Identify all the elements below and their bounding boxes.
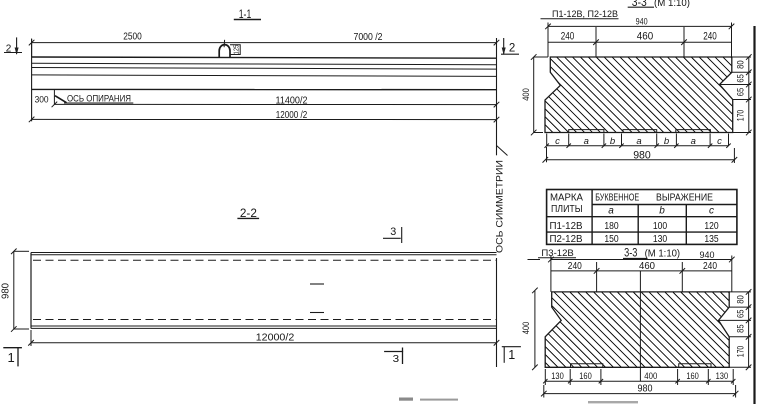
svg-text:980: 980 bbox=[633, 149, 651, 161]
svg-text:170: 170 bbox=[736, 346, 746, 358]
svg-text:240: 240 bbox=[561, 30, 575, 42]
svg-text:b: b bbox=[610, 136, 615, 147]
svg-text:a: a bbox=[608, 206, 614, 217]
svg-text:65: 65 bbox=[736, 309, 746, 318]
svg-text:130: 130 bbox=[551, 371, 564, 382]
svg-text:П1-12В, П2-12В: П1-12В, П2-12В bbox=[552, 9, 618, 20]
svg-text:125: 125 bbox=[231, 45, 240, 55]
svg-text:a: a bbox=[636, 136, 641, 147]
svg-text:170: 170 bbox=[736, 110, 746, 122]
svg-text:3-3: 3-3 bbox=[624, 247, 637, 259]
svg-text:b: b bbox=[659, 206, 665, 217]
svg-text:1: 1 bbox=[8, 350, 15, 365]
svg-text:80: 80 bbox=[736, 295, 746, 304]
svg-text:(М 1:10): (М 1:10) bbox=[654, 0, 690, 9]
svg-text:460: 460 bbox=[637, 30, 653, 42]
svg-text:МАРКА: МАРКА bbox=[550, 192, 583, 203]
svg-text:400: 400 bbox=[644, 371, 657, 382]
svg-text:460: 460 bbox=[639, 261, 655, 272]
svg-text:c: c bbox=[709, 206, 714, 217]
svg-text:80: 80 bbox=[736, 60, 746, 69]
svg-text:180: 180 bbox=[604, 221, 619, 232]
svg-text:150: 150 bbox=[604, 234, 619, 245]
svg-text:a: a bbox=[691, 136, 696, 147]
svg-text:160: 160 bbox=[579, 371, 592, 382]
svg-text:11400/2: 11400/2 bbox=[276, 95, 308, 107]
svg-text:980: 980 bbox=[638, 383, 653, 394]
svg-text:c: c bbox=[717, 136, 722, 147]
svg-text:240: 240 bbox=[568, 261, 582, 272]
svg-text:ПЛИТЫ: ПЛИТЫ bbox=[551, 204, 583, 215]
svg-text:П2-12В: П2-12В bbox=[550, 234, 583, 245]
svg-text:160: 160 bbox=[686, 371, 699, 382]
svg-text:65: 65 bbox=[736, 88, 746, 97]
svg-text:2: 2 bbox=[6, 43, 12, 54]
svg-text:1: 1 bbox=[508, 348, 515, 362]
svg-text:ВЫРАЖЕНИЕ: ВЫРАЖЕНИЕ bbox=[656, 192, 713, 203]
svg-text:1-1: 1-1 bbox=[239, 7, 252, 21]
svg-text:П1-12В: П1-12В bbox=[550, 221, 583, 232]
svg-text:980: 980 bbox=[1, 283, 12, 299]
svg-text:65: 65 bbox=[736, 74, 746, 83]
svg-text:400: 400 bbox=[521, 322, 532, 335]
svg-text:300: 300 bbox=[35, 94, 49, 105]
svg-text:940: 940 bbox=[636, 17, 648, 28]
svg-text:c: c bbox=[555, 136, 560, 147]
svg-text:135: 135 bbox=[704, 234, 719, 245]
svg-text:240: 240 bbox=[703, 30, 717, 42]
svg-text:240: 240 bbox=[703, 261, 717, 272]
svg-text:12000/2: 12000/2 bbox=[256, 331, 295, 343]
svg-text:b: b bbox=[664, 136, 669, 147]
svg-text:2: 2 bbox=[509, 43, 515, 55]
svg-text:(М 1:10): (М 1:10) bbox=[645, 248, 681, 260]
svg-text:85: 85 bbox=[736, 324, 746, 333]
svg-text:130: 130 bbox=[716, 371, 729, 382]
svg-text:2500: 2500 bbox=[123, 31, 142, 43]
svg-text:100: 100 bbox=[653, 221, 668, 232]
svg-text:130: 130 bbox=[653, 234, 668, 245]
svg-text:БУКВЕННОЕ: БУКВЕННОЕ bbox=[595, 192, 639, 203]
svg-text:3: 3 bbox=[393, 354, 400, 365]
svg-text:ОСЬ ОПИРАНИЯ: ОСЬ ОПИРАНИЯ bbox=[67, 93, 131, 103]
svg-text:120: 120 bbox=[704, 221, 719, 232]
svg-text:12000 /2: 12000 /2 bbox=[276, 110, 308, 121]
svg-text:a: a bbox=[584, 136, 589, 147]
svg-text:7000 /2: 7000 /2 bbox=[354, 32, 383, 43]
svg-text:400: 400 bbox=[521, 88, 532, 101]
svg-text:ОСЬ СИММЕТРИИ: ОСЬ СИММЕТРИИ bbox=[495, 160, 506, 253]
svg-text:3: 3 bbox=[390, 226, 396, 238]
